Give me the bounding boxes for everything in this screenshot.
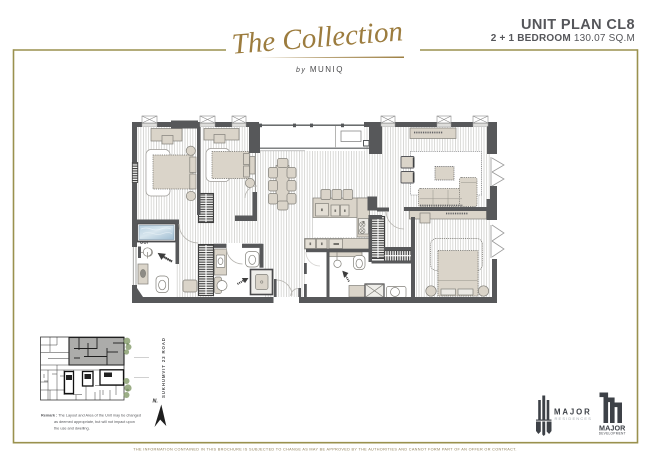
svg-text:Remark : The Layout and Area o: Remark : The Layout and Area of the Unit… [41,414,141,418]
svg-text:The Collection: The Collection [231,15,405,60]
svg-text:RESIDENCES: RESIDENCES [555,416,593,421]
svg-text:N.: N. [153,399,159,405]
svg-text:the use and dwelling.: the use and dwelling. [54,427,90,431]
svg-text:THE INFORMATION CONTAINED IN T: THE INFORMATION CONTAINED IN THIS BROCHU… [133,448,516,452]
svg-text:as deemed appropriate, but wil: as deemed appropriate, but will not impa… [54,420,135,424]
svg-text:DEVELOPMENT: DEVELOPMENT [599,432,626,436]
svg-text:UNIT PLAN CL8: UNIT PLAN CL8 [521,17,635,33]
svg-text:by MUNIQ: by MUNIQ [296,65,344,74]
svg-text:2 + 1 BEDROOM 130.07 SQ.M: 2 + 1 BEDROOM 130.07 SQ.M [491,33,635,44]
svg-text:SUKHUMVIT 23 ROAD: SUKHUMVIT 23 ROAD [161,337,166,398]
